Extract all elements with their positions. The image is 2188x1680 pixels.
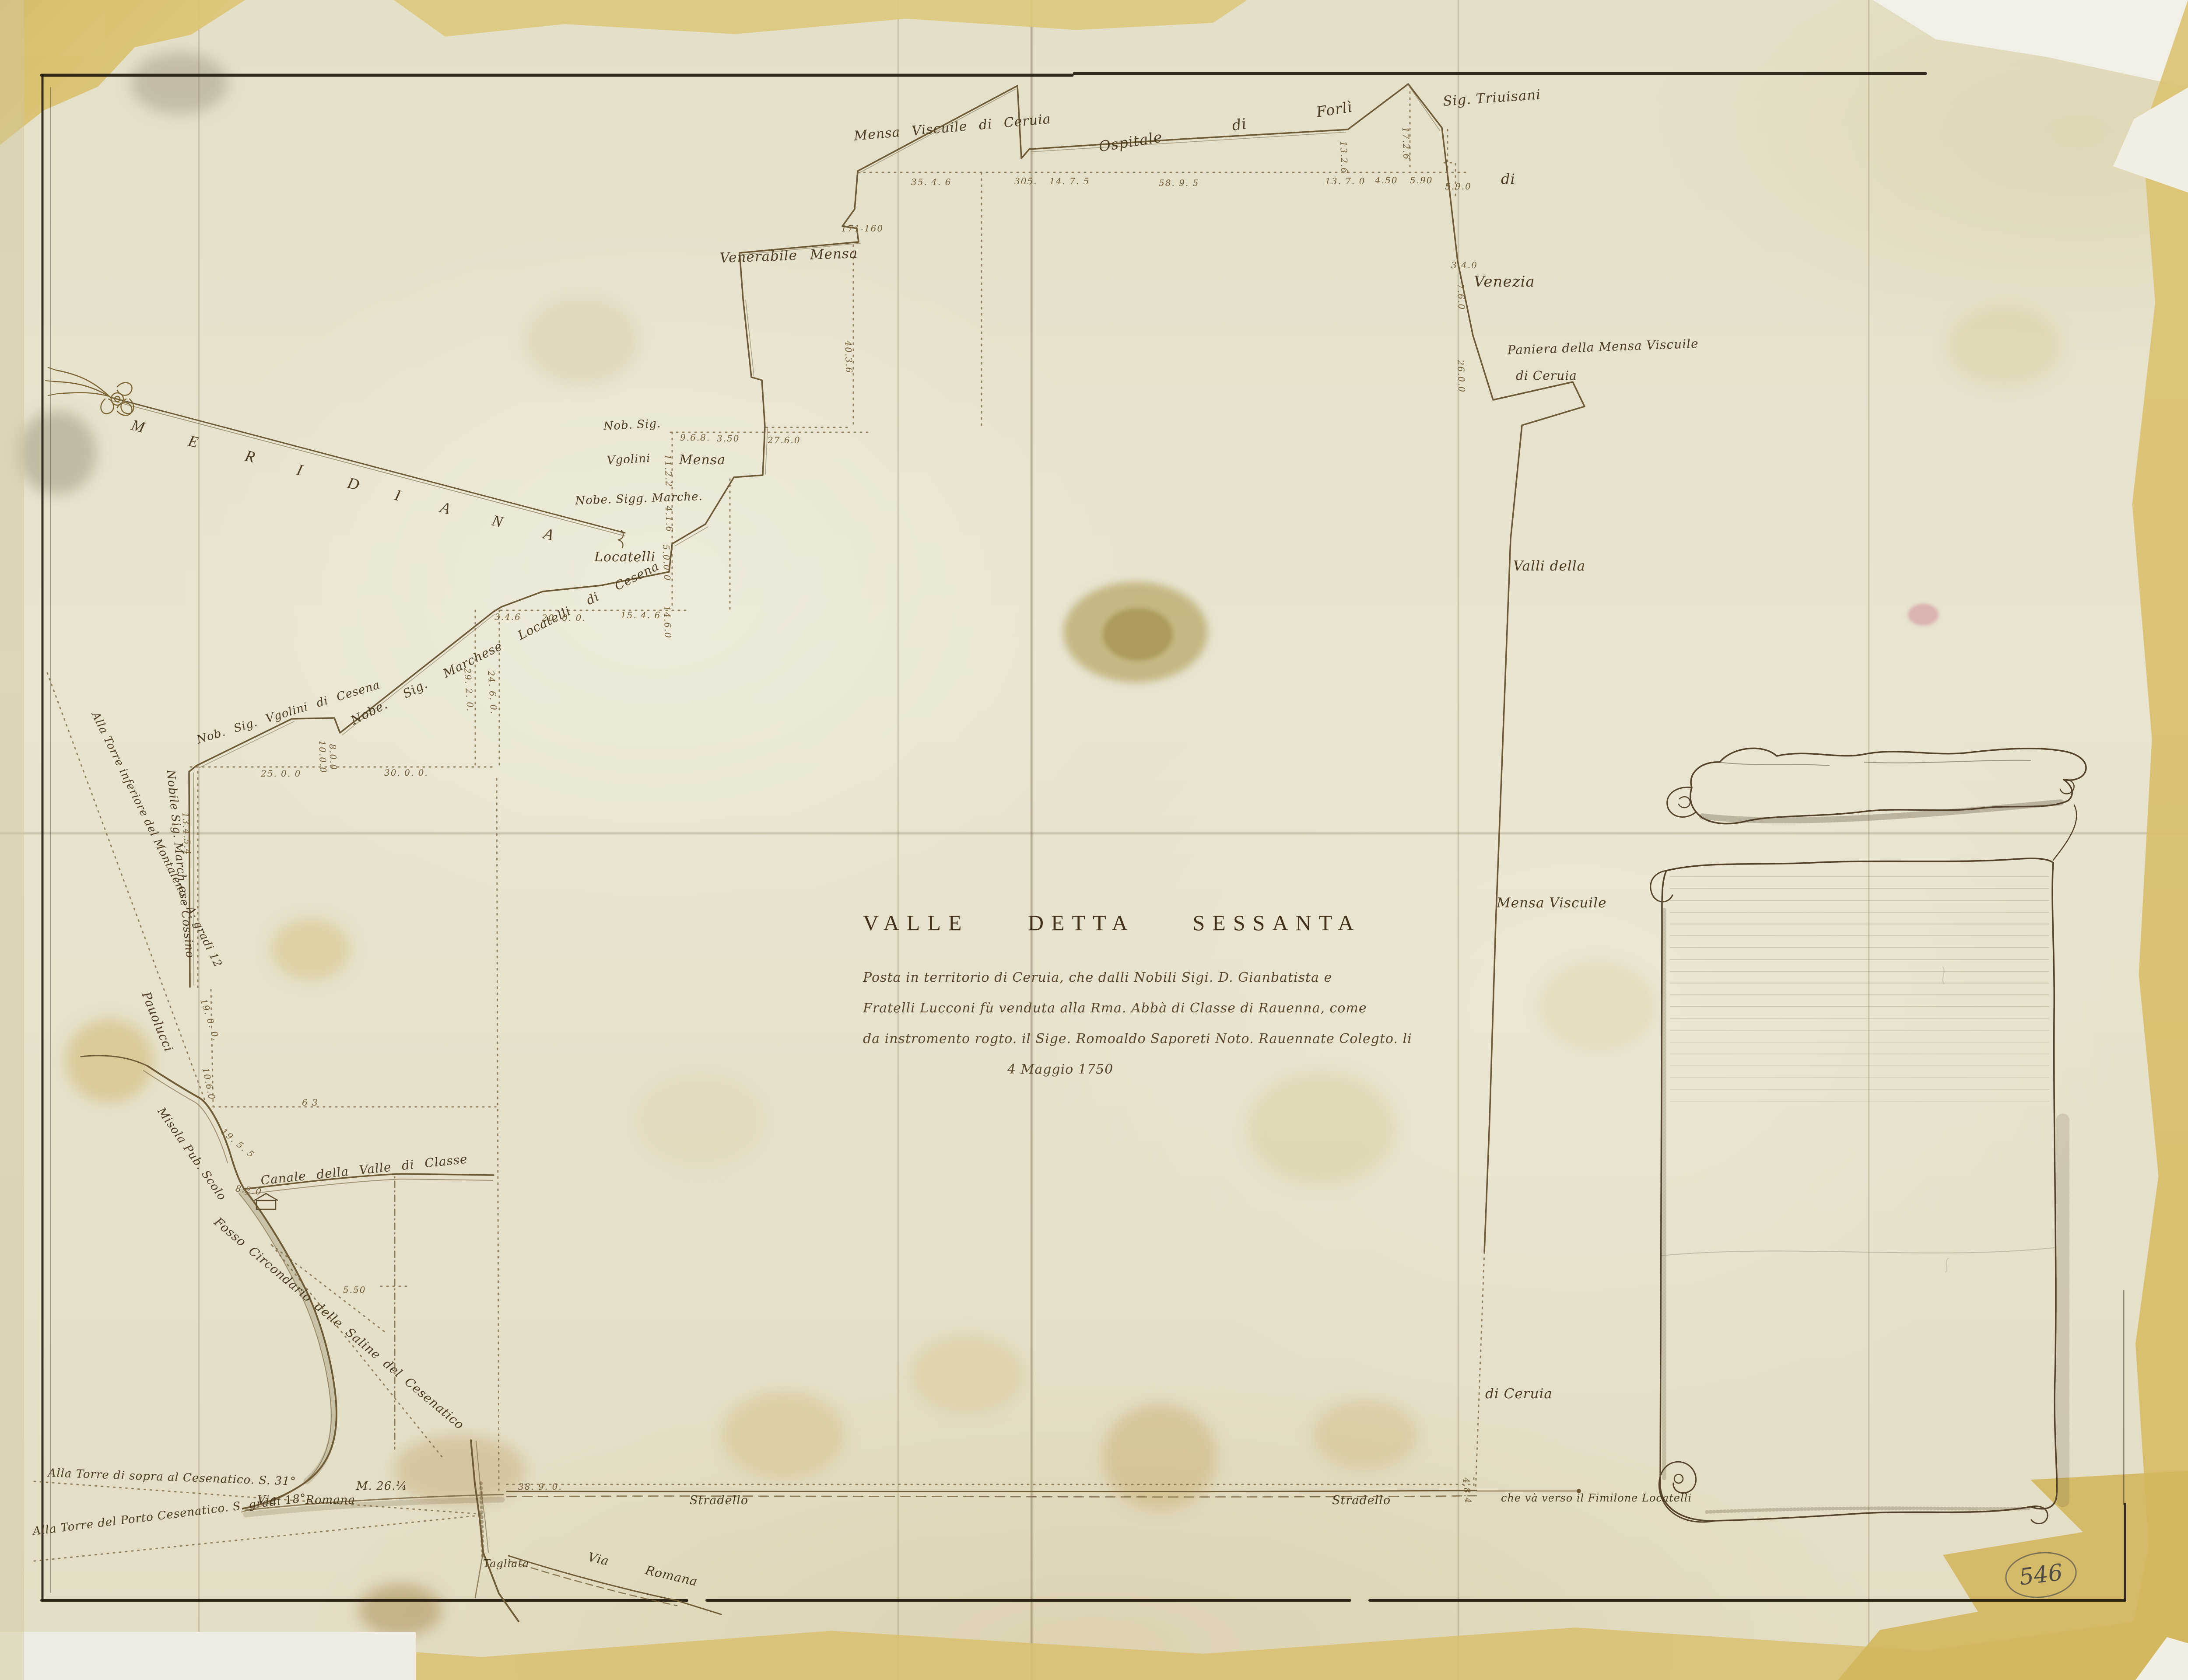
map-label-pauolucci: Pauolucci <box>139 990 176 1054</box>
measurement-number: 10.6.0 <box>200 1067 217 1101</box>
map-label-venerabile-mensa: Venerabile Mensa <box>719 245 858 266</box>
meridian-letter: R <box>243 446 257 466</box>
measurement-number: 14. 7. 5 <box>1049 176 1090 186</box>
map-label-nob-sig: Nob. Sig. <box>603 417 661 433</box>
measurement-number: 58. 9. 5 <box>1159 178 1199 188</box>
measurement-number: 7.6.0 <box>1455 283 1467 311</box>
map-label-marchese-locatelli-cesena: Nobe. Sig. Marchese Locatelli di Cesena <box>348 559 662 728</box>
title-line-1: Posta in territorio di Ceruia, che dalli… <box>863 962 1384 993</box>
map-label-canale-valle-classe: Canale della Valle di Classe <box>260 1151 468 1187</box>
map-label-di-ceruia: di Ceruia <box>1485 1386 1553 1402</box>
meridian-letter: D <box>346 473 361 494</box>
measurement-number: 15. 4. 6 <box>621 610 661 620</box>
measurement-number: 26.0.0 <box>1455 360 1467 393</box>
archive-number: 546 <box>2018 1559 2064 1591</box>
measurement-number: 4.1.6 <box>663 506 675 533</box>
map-label-misura-m: M. 26.¼ <box>356 1480 407 1493</box>
measurement-number: 17.2.6 <box>1400 127 1412 160</box>
map-label-mensa: Mensa <box>679 452 726 468</box>
measurement-number: 3.50 <box>717 433 740 444</box>
map-label-fimilone-locatelli: che và verso il Fimilone Locatelli <box>1501 1492 1692 1504</box>
measurement-number: 20. 0. 0. <box>542 612 586 623</box>
measurement-number: 40.3.6 <box>843 340 855 374</box>
title-line-3: da instromento rogto. il Sige. Romoaldo … <box>863 1024 1384 1054</box>
measurement-number: 13. 7. 0 <box>1325 176 1365 186</box>
map-label-torre-montaleno: Alla Torre inferiore del Montaleno . A: … <box>89 710 224 969</box>
measurement-number: 4.8.4 <box>1461 1477 1473 1505</box>
measurement-number: 19. 0. 0. <box>198 997 222 1043</box>
map-title: VALLE DETTA SESSANTA <box>863 910 1384 935</box>
measurement-number: 35. 4. 6 <box>911 177 951 187</box>
title-date-line: 4 Maggio 1750 <box>1007 1054 1384 1085</box>
measurement-number: 10.0.0 <box>317 740 329 773</box>
map-label-via-romana-2: Via Romana <box>587 1550 699 1589</box>
measurement-number: 19. 5. 5 <box>219 1126 257 1160</box>
measurement-number: 171-160 <box>841 223 884 234</box>
measurement-number: 27.6.0 <box>768 435 801 445</box>
measurement-number: 11.2.2 <box>663 454 674 487</box>
map-label-vgolini: Vgolini <box>607 452 651 467</box>
measurement-number: 14.6.0 <box>662 605 673 639</box>
measurement-number: 5.90 <box>1410 175 1433 185</box>
map-label-valli-della: Valli della <box>1513 558 1585 574</box>
map-label-di-venezia-2: Venezia <box>1474 273 1535 290</box>
measurement-number: 29. 2. 0. <box>462 668 476 712</box>
measurement-number: 5.0.0.0 <box>661 544 673 581</box>
measurement-number: 24. 6. 0. <box>486 670 499 715</box>
map-label-mensa-vescovile-cervia: Mensa Viscuile di Ceruia <box>853 112 1052 144</box>
measurement-number: 5.9.0 <box>1445 181 1472 192</box>
map-label-paniera-line1: Paniera della Mensa Viscuile <box>1507 336 1699 357</box>
measurement-number: 6 3 <box>302 1097 319 1108</box>
measurement-number: 8.2.0 <box>235 1183 263 1197</box>
map-label-mensa-viscuile: Mensa Viscuile <box>1497 895 1606 911</box>
map-label-paniera-line2: di Ceruia <box>1516 368 1577 383</box>
meridian-letter: M <box>130 416 147 437</box>
measurement-number: 3.4.0 <box>1451 260 1478 270</box>
measurement-number: 13.4.5.4 <box>180 812 193 856</box>
measurement-number: 3.4.6 <box>494 612 521 622</box>
map-label-stradello-2: Stradello <box>1332 1494 1391 1507</box>
map-label-torre-sopra-cesenatico: Alla Torre di sopra al Cesenatico. S. 31… <box>48 1466 296 1488</box>
meridian-letter: A <box>438 498 452 518</box>
measurement-number: 8.0.0 <box>327 744 339 771</box>
measurement-number: 5.50 <box>343 1284 366 1295</box>
map-label-misola-scolo: Misola Pub. Scolo <box>154 1105 228 1203</box>
map-label-sig-triuisani: Sig. Triuisani <box>1442 87 1541 109</box>
label-layer: Mensa Viscuile di CeruiaOspitale di Forl… <box>0 0 2188 1680</box>
measurement-number: 38. 9. 0. <box>518 1481 562 1492</box>
meridian-letter: N <box>490 511 505 532</box>
map-label-via-romana-1: Via Romana <box>257 1494 355 1507</box>
map-label-stradello-1: Stradello <box>690 1494 748 1507</box>
measurement-number: 30. 0. 0. <box>384 767 428 778</box>
map-label-fosso-circondario: Fosso Circondario delle Saline del Cesen… <box>211 1214 467 1432</box>
measurement-number: 9.6.8. <box>680 432 710 443</box>
meridian-letter: I <box>393 486 403 505</box>
map-label-di-venezia-1: di <box>1501 171 1515 187</box>
title-line-2: Fratelli Lucconi fù venduta alla Rma. Ab… <box>863 993 1384 1024</box>
map-label-nob-sig-marche: Nobe. Sigg. Marche. <box>575 490 703 507</box>
map-label-ospitale-di-forli: Ospitale di Forlì <box>1098 98 1353 155</box>
map-sheet: Mensa Viscuile di CeruiaOspitale di Forl… <box>0 0 2188 1680</box>
measurement-number: 25. 0. 0 <box>261 768 301 779</box>
meridian-letter: I <box>295 460 305 479</box>
meridian-letter: E <box>186 431 200 451</box>
measurement-number: 4.50 <box>1375 175 1398 185</box>
measurement-number: 305. <box>1014 176 1038 186</box>
title-block: VALLE DETTA SESSANTA Posta in territorio… <box>863 910 1384 1085</box>
meridian-letter: A <box>542 524 556 544</box>
measurement-number: 13.2.6 <box>1338 141 1350 174</box>
map-label-tagliata: Tagliata <box>483 1557 529 1570</box>
